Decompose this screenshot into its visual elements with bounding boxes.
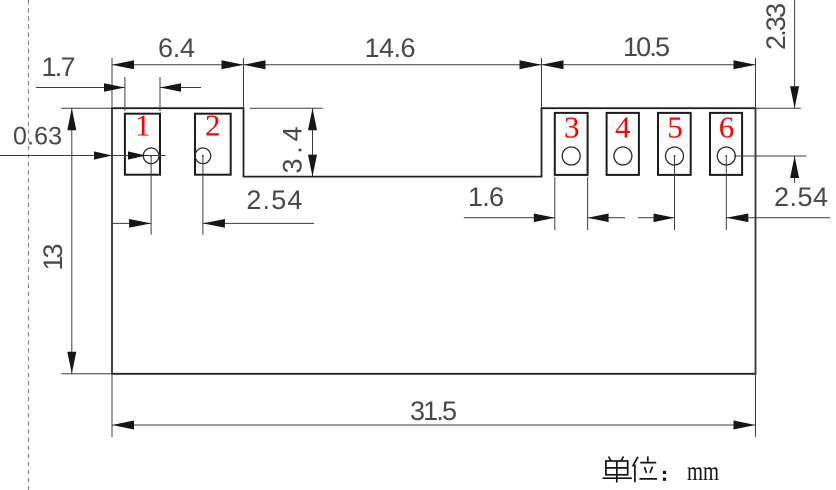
svg-text:31.5: 31.5 [410,396,457,426]
svg-text:6.4: 6.4 [158,33,195,63]
svg-text:5: 5 [667,110,683,145]
svg-text:4: 4 [615,110,631,145]
svg-text:14.6: 14.6 [365,33,416,63]
svg-text:0.63: 0.63 [13,123,62,151]
svg-text:2.33: 2.33 [761,3,791,50]
svg-text:10.5: 10.5 [623,32,670,62]
svg-text:1: 1 [135,108,151,143]
svg-text:2.54: 2.54 [774,182,828,212]
svg-text:2.54: 2.54 [246,185,302,215]
svg-text:3.4: 3.4 [278,127,308,174]
svg-text:13: 13 [38,244,68,271]
svg-text:3: 3 [564,110,580,145]
svg-text:1.7: 1.7 [42,52,76,82]
svg-text:6: 6 [719,110,735,145]
svg-text:2: 2 [205,108,221,143]
svg-text:1.6: 1.6 [468,182,504,212]
svg-text:mm: mm [687,456,719,486]
